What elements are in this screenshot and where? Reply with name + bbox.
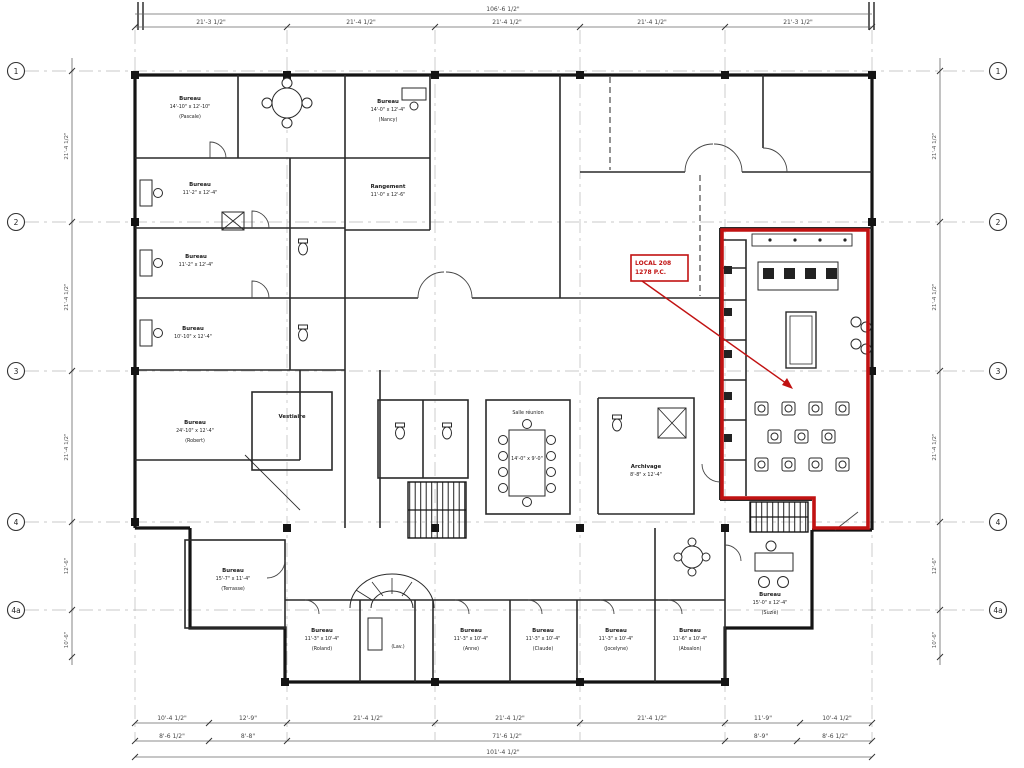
grid-bubble-left-2: 2 bbox=[8, 214, 25, 231]
dim-bottom: 10'-4 1/2" bbox=[157, 715, 187, 722]
dim-bottom: 12'-9" bbox=[239, 715, 257, 722]
callout-local-area: 1278 P.C. bbox=[635, 269, 666, 276]
svg-text:(Anne): (Anne) bbox=[463, 646, 479, 652]
svg-text:Vestiaire: Vestiaire bbox=[279, 414, 306, 420]
room-label-bureau-4: Bureau 11'-2" x 12'-4" bbox=[179, 254, 214, 268]
dim-right: 21'-4 1/2" bbox=[932, 132, 938, 159]
elevator-shafts bbox=[222, 212, 686, 438]
svg-text:24'-10" x 12'-4": 24'-10" x 12'-4" bbox=[176, 428, 214, 434]
curved-stair bbox=[350, 574, 434, 608]
svg-text:(Nancy): (Nancy) bbox=[379, 117, 398, 123]
room-label-lav: (Lav.) bbox=[391, 644, 404, 650]
svg-text:2: 2 bbox=[996, 218, 1001, 227]
round-table-bottom bbox=[674, 538, 710, 576]
svg-text:11'-3" x 10'-4": 11'-3" x 10'-4" bbox=[526, 636, 561, 642]
dim-top-bay: 21'-4 1/2" bbox=[637, 19, 667, 26]
floor-plan-drawing: 106'-6 1/2" 21'-3 1/2" 21'-4 1/2" 21'-4 … bbox=[0, 0, 1024, 768]
room-label-office-jocelyne: Bureau 11'-3" x 10'-4" (Jocelyne) bbox=[599, 628, 634, 652]
dim-bottom-total: 101'-4 1/2" bbox=[486, 749, 520, 756]
svg-text:(Roland): (Roland) bbox=[312, 646, 332, 652]
dim-left: 10'-6" bbox=[64, 632, 70, 649]
conference-table bbox=[499, 420, 556, 507]
room-label-office-absalon: Bureau 11'-6" x 10'-4" (Absalon) bbox=[673, 628, 708, 652]
grid-centerlines bbox=[25, 30, 990, 740]
dim-bottom: 71'-6 1/2" bbox=[492, 733, 522, 740]
svg-text:(Pascale): (Pascale) bbox=[179, 114, 201, 120]
room-label-office-claude: Bureau 11'-3" x 10'-4" (Claude) bbox=[526, 628, 561, 652]
svg-text:11'-3" x 10'-4": 11'-3" x 10'-4" bbox=[454, 636, 489, 642]
door-swings bbox=[210, 142, 858, 614]
dim-bottom: 8'-9" bbox=[754, 733, 768, 740]
dim-top-overall: 106'-6 1/2" bbox=[486, 6, 520, 13]
svg-text:14'-10" x 12'-10": 14'-10" x 12'-10" bbox=[170, 104, 211, 110]
svg-text:11'-2" x 12'-4": 11'-2" x 12'-4" bbox=[179, 262, 214, 268]
left-dimension-stack: 21'-4 1/2" 21'-4 1/2" 21'-4 1/2" 12'-6" … bbox=[64, 58, 75, 665]
dim-bottom: 8'-8" bbox=[241, 733, 255, 740]
dim-bottom: 21'-4 1/2" bbox=[637, 715, 667, 722]
svg-text:Rangement: Rangement bbox=[371, 184, 406, 190]
dim-bottom: 21'-4 1/2" bbox=[353, 715, 383, 722]
svg-text:15'-7" x 11'-4": 15'-7" x 11'-4" bbox=[216, 576, 251, 582]
right-dimension-stack: 21'-4 1/2" 21'-4 1/2" 21'-4 1/2" 12'-6" … bbox=[932, 58, 943, 665]
room-label-bureau-nancy: Bureau 14'-0" x 12'-4" (Nancy) bbox=[371, 99, 406, 123]
svg-text:Bureau: Bureau bbox=[184, 420, 206, 426]
room-label-archivage: Archivage 8'-8" x 12'-4" bbox=[630, 464, 662, 478]
classroom-chairs bbox=[755, 402, 849, 471]
room-label-office-anne: Bureau 11'-3" x 10'-4" (Anne) bbox=[454, 628, 489, 652]
dim-bottom: 10'-4 1/2" bbox=[822, 715, 852, 722]
grid-bubble-right-4a: 4a bbox=[990, 602, 1007, 619]
svg-text:Bureau: Bureau bbox=[185, 254, 207, 260]
svg-text:11'-0" x 12'-6": 11'-0" x 12'-6" bbox=[371, 192, 406, 198]
room-label-terrasse: Bureau 15'-7" x 11'-4" (Terrasse) bbox=[216, 568, 251, 592]
svg-text:Bureau: Bureau bbox=[759, 592, 781, 598]
dim-top-bay: 21'-4 1/2" bbox=[492, 19, 522, 26]
svg-text:4: 4 bbox=[14, 518, 19, 527]
svg-text:Bureau: Bureau bbox=[532, 628, 554, 634]
dim-top-bay: 21'-4 1/2" bbox=[346, 19, 376, 26]
dim-bottom: 8'-6 1/2" bbox=[822, 733, 848, 740]
callout-leader-arrowhead bbox=[782, 378, 793, 389]
dim-bottom: 21'-4 1/2" bbox=[495, 715, 525, 722]
dim-right: 21'-4 1/2" bbox=[932, 283, 938, 310]
room-label-bureau-robert: Bureau 24'-10" x 12'-4" (Robert) bbox=[176, 420, 214, 444]
room-label-vestiaire: Vestiaire bbox=[279, 414, 306, 420]
svg-text:11'-3" x 10'-4": 11'-3" x 10'-4" bbox=[305, 636, 340, 642]
room-label-bureau-5: Bureau 10'-10" x 12'-4" bbox=[174, 326, 212, 340]
staircase-center bbox=[408, 482, 466, 538]
dim-right: 12'-6" bbox=[932, 558, 938, 575]
svg-text:14'-0" x 9'-0": 14'-0" x 9'-0" bbox=[511, 456, 543, 462]
svg-text:Bureau: Bureau bbox=[679, 628, 701, 634]
svg-text:(Robert): (Robert) bbox=[185, 438, 205, 444]
grid-bubble-right-1: 1 bbox=[990, 63, 1007, 80]
round-table-top bbox=[262, 78, 312, 128]
bottom-dimensions: 10'-4 1/2" 12'-9" 21'-4 1/2" 21'-4 1/2" … bbox=[132, 715, 875, 760]
svg-text:(Jocelyne): (Jocelyne) bbox=[604, 646, 628, 652]
dim-bottom: 11'-9" bbox=[754, 715, 772, 722]
callout-local-name: LOCAL 208 bbox=[635, 260, 671, 267]
svg-text:Bureau: Bureau bbox=[460, 628, 482, 634]
svg-text:11'-6" x 10'-4": 11'-6" x 10'-4" bbox=[673, 636, 708, 642]
svg-text:15'-0" x 12'-4": 15'-0" x 12'-4" bbox=[753, 600, 788, 606]
dim-top-bay: 21'-3 1/2" bbox=[783, 19, 813, 26]
svg-text:14'-0" x 12'-4": 14'-0" x 12'-4" bbox=[371, 107, 406, 113]
dim-left: 21'-4 1/2" bbox=[64, 433, 70, 460]
dim-left: 21'-4 1/2" bbox=[64, 283, 70, 310]
svg-text:10'-10" x 12'-4": 10'-10" x 12'-4" bbox=[174, 334, 212, 340]
room-label-bureau-3: Bureau 11'-2" x 12'-4" bbox=[183, 182, 218, 196]
grid-bubble-left-4a: 4a bbox=[8, 602, 25, 619]
grid-bubble-right-4: 4 bbox=[990, 514, 1007, 531]
room-label-rangement: Rangement 11'-0" x 12'-6" bbox=[371, 184, 406, 198]
room-label-bureau-pascale: Bureau 14'-10" x 12'-10" (Pascale) bbox=[170, 96, 211, 120]
interior-walls bbox=[135, 75, 872, 682]
svg-text:1: 1 bbox=[996, 67, 1001, 76]
svg-text:(Suzie): (Suzie) bbox=[762, 610, 779, 616]
dim-bottom: 8'-6 1/2" bbox=[159, 733, 185, 740]
svg-text:11'-2" x 12'-4": 11'-2" x 12'-4" bbox=[183, 190, 218, 196]
floor-plan-sheet: 106'-6 1/2" 21'-3 1/2" 21'-4 1/2" 21'-4 … bbox=[0, 0, 1024, 768]
grid-bubble-right-2: 2 bbox=[990, 214, 1007, 231]
dim-top-bay: 21'-3 1/2" bbox=[196, 19, 226, 26]
grid-bubble-right-3: 3 bbox=[990, 363, 1007, 380]
dim-left: 21'-4 1/2" bbox=[64, 132, 70, 159]
svg-text:Bureau: Bureau bbox=[182, 326, 204, 332]
svg-text:Bureau: Bureau bbox=[222, 568, 244, 574]
staircase-local bbox=[750, 502, 808, 532]
svg-text:Salle réunion: Salle réunion bbox=[512, 409, 543, 416]
svg-text:2: 2 bbox=[14, 218, 19, 227]
svg-text:4a: 4a bbox=[11, 606, 20, 615]
svg-text:4: 4 bbox=[996, 518, 1001, 527]
grid-bubble-left-4: 4 bbox=[8, 514, 25, 531]
desk-suzie bbox=[755, 541, 793, 588]
dim-right: 10'-6" bbox=[932, 632, 938, 649]
svg-text:Bureau: Bureau bbox=[377, 99, 399, 105]
room-label-bureau-suzie: Bureau 15'-0" x 12'-4" (Suzie) bbox=[753, 592, 788, 616]
svg-text:(Lav.): (Lav.) bbox=[391, 644, 404, 650]
svg-text:4a: 4a bbox=[993, 606, 1002, 615]
svg-text:Bureau: Bureau bbox=[179, 96, 201, 102]
exterior-walls bbox=[135, 75, 872, 682]
grid-bubble-left-3: 3 bbox=[8, 363, 25, 380]
svg-text:3: 3 bbox=[14, 367, 19, 376]
svg-text:Bureau: Bureau bbox=[311, 628, 333, 634]
dim-left: 12'-6" bbox=[64, 558, 70, 575]
svg-text:Archivage: Archivage bbox=[631, 464, 662, 470]
top-dimensions: 106'-6 1/2" 21'-3 1/2" 21'-4 1/2" 21'-4 … bbox=[132, 2, 875, 30]
svg-text:3: 3 bbox=[996, 367, 1001, 376]
svg-text:(Terrasse): (Terrasse) bbox=[221, 586, 245, 592]
grid-bubble-left-1: 1 bbox=[8, 63, 25, 80]
svg-text:8'-8" x 12'-4": 8'-8" x 12'-4" bbox=[630, 472, 662, 478]
svg-text:(Absalon): (Absalon) bbox=[679, 646, 702, 652]
svg-text:Bureau: Bureau bbox=[189, 182, 211, 188]
room-label-office-roland: Bureau 11'-3" x 10'-4" (Roland) bbox=[305, 628, 340, 652]
toilet-fixtures bbox=[299, 239, 622, 650]
svg-text:(Claude): (Claude) bbox=[533, 646, 554, 652]
svg-text:11'-3" x 10'-4": 11'-3" x 10'-4" bbox=[599, 636, 634, 642]
callout-leader-line bbox=[642, 281, 790, 386]
svg-text:1: 1 bbox=[14, 67, 19, 76]
svg-text:Bureau: Bureau bbox=[605, 628, 627, 634]
dim-right: 21'-4 1/2" bbox=[932, 433, 938, 460]
